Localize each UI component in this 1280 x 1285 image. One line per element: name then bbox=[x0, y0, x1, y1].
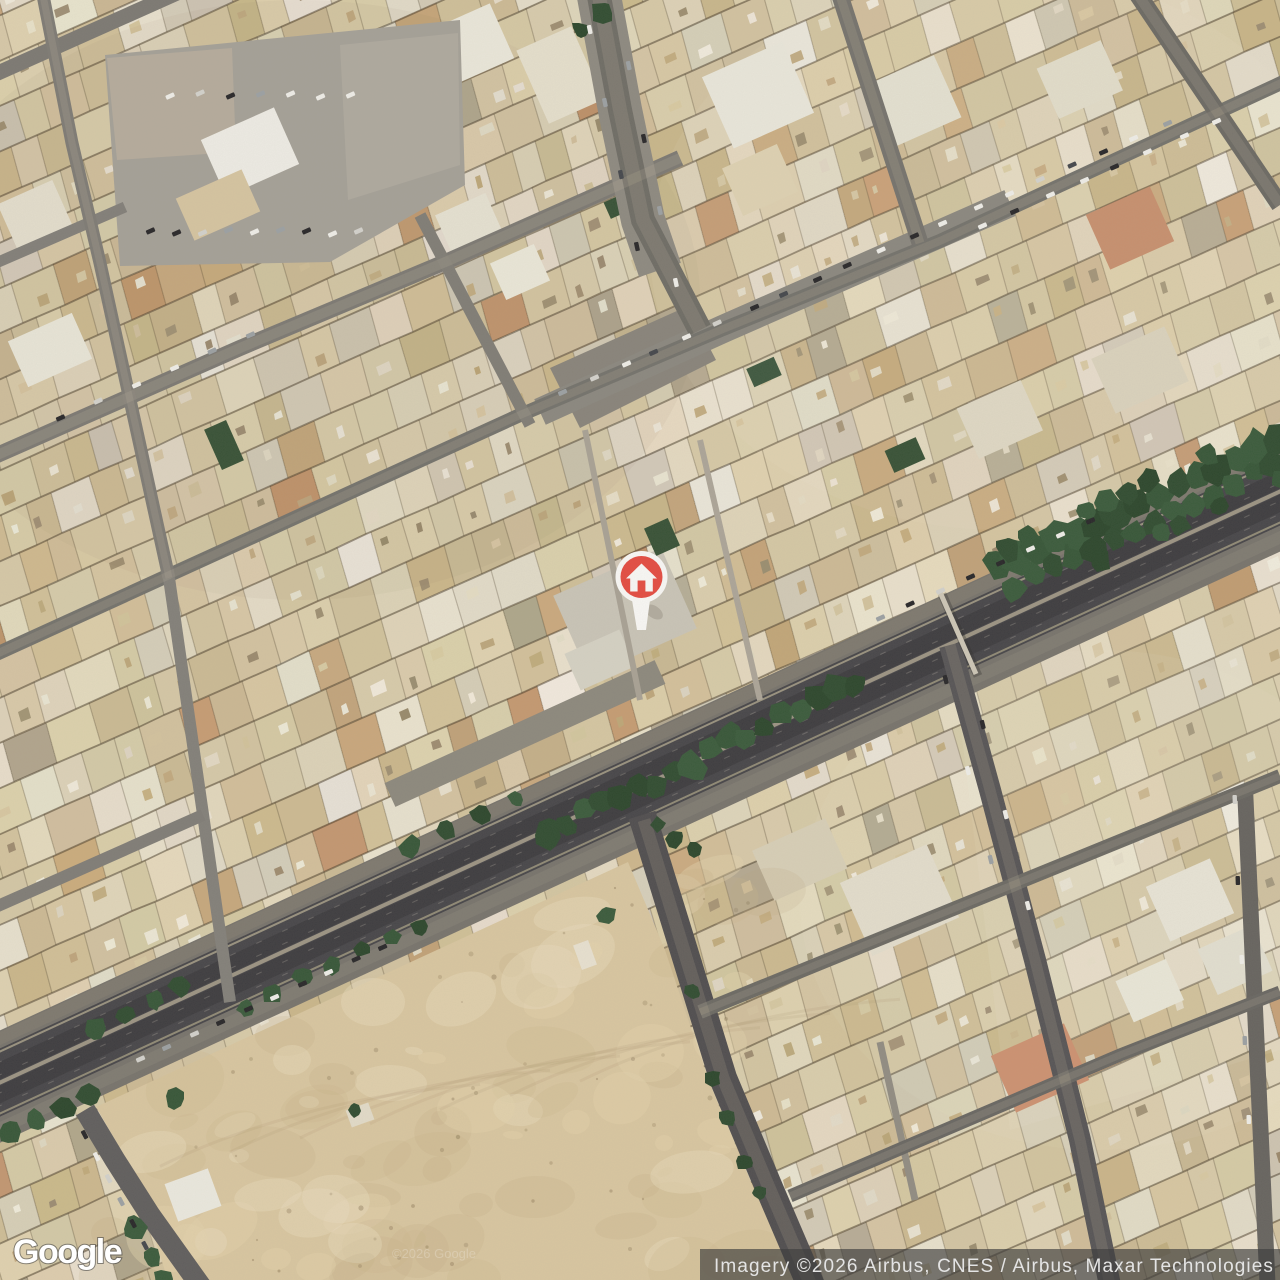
svg-text:©2026 Google: ©2026 Google bbox=[392, 1246, 476, 1261]
svg-text:Google: Google bbox=[13, 1233, 122, 1271]
svg-text:Imagery ©2026 Airbus, CNES / A: Imagery ©2026 Airbus, CNES / Airbus, Max… bbox=[714, 1256, 1274, 1277]
